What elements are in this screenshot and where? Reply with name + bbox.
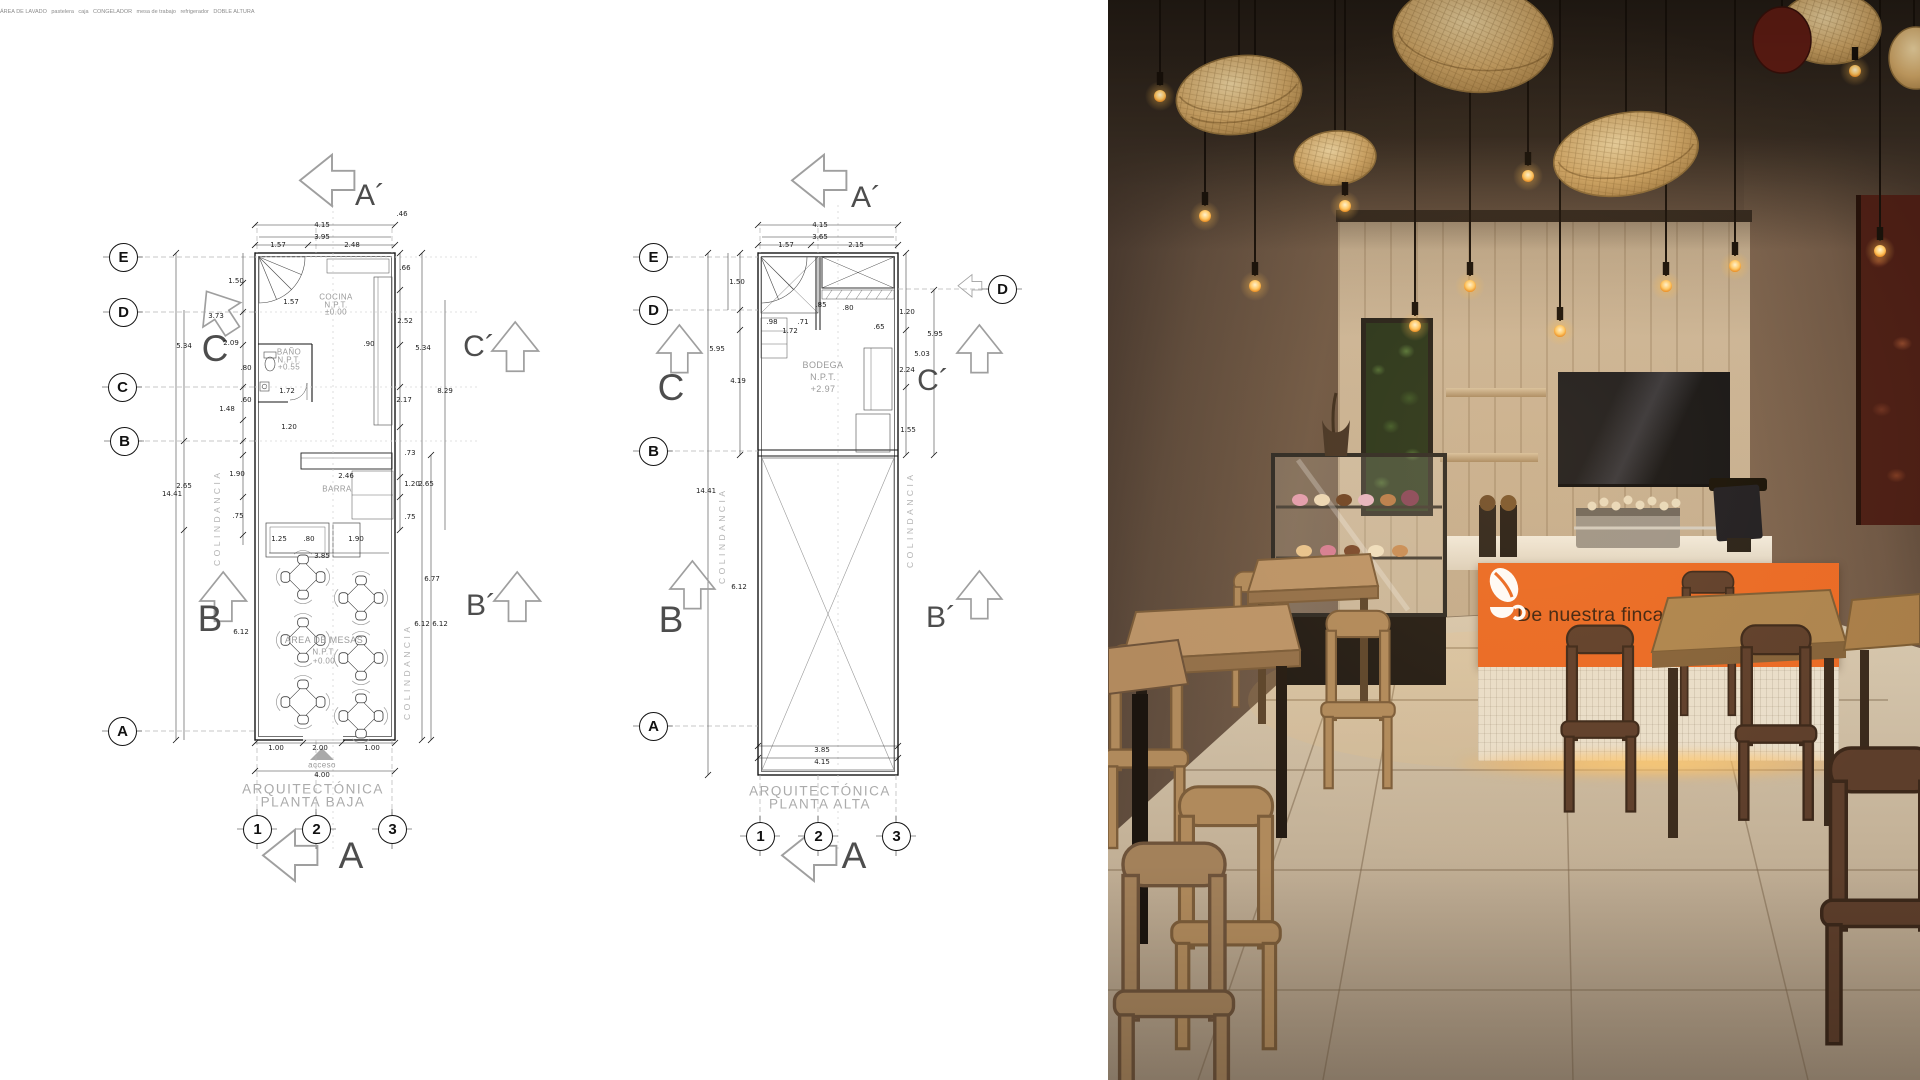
section-label-b-prime: B´	[466, 589, 496, 623]
dimension-label: 5.95	[709, 345, 725, 353]
grid-bubble-B2: B	[639, 437, 668, 466]
plan-alta-walls	[758, 253, 898, 775]
dimension-label: 1.55	[900, 426, 916, 434]
grid-bubble-B: B	[110, 427, 139, 456]
dimension-label: 1.72	[279, 387, 295, 395]
dimension-label: 14.41	[696, 487, 716, 495]
section-label-a: A	[339, 835, 364, 877]
dimension-label: 4.15	[314, 221, 330, 229]
grid-bubble-E: E	[109, 243, 138, 272]
grid-bubble-1: 1	[243, 815, 272, 844]
plan-alta-section-arrows	[657, 155, 1002, 881]
dimension-label: 2.65	[418, 480, 434, 488]
dimension-label: 1.57	[283, 298, 299, 306]
dimension-label: .80	[303, 535, 314, 543]
grid-bubble-3: 3	[378, 815, 407, 844]
grid-bubble-1b: 1	[746, 822, 775, 851]
dimension-label: 3.85	[814, 746, 830, 754]
dimension-label: 2.00	[312, 744, 328, 752]
right-tables-and-chairs	[1562, 572, 1920, 1044]
dimension-label: 1.57	[778, 241, 794, 249]
dimension-label: 1.00	[268, 744, 284, 752]
dimension-label: 2.09	[223, 339, 239, 347]
plan-baja-title-2: PLANTA BAJA	[261, 795, 366, 810]
furniture-and-lamps-layer	[1108, 0, 1920, 1080]
dimension-label: 2.52	[397, 317, 413, 325]
plan-baja-fixtures	[258, 257, 393, 760]
dimension-label: 2.46	[338, 472, 354, 480]
pastry-display-case	[1273, 393, 1446, 685]
section-label-c-prime: C´	[463, 330, 495, 364]
dimension-label: 1.90	[229, 470, 245, 478]
grid-bubble-2b: 2	[804, 822, 833, 851]
colindancia-left-2: COLINDANCIA	[717, 490, 727, 584]
section-label-a-2: A	[842, 835, 867, 877]
dimension-label: 4.19	[730, 377, 746, 385]
dimension-label: 6.12	[731, 583, 747, 591]
room-label-cocina-level: ±0.00	[325, 308, 347, 317]
dimension-label: 1.72	[782, 327, 798, 335]
dimension-label: 1.50	[228, 277, 244, 285]
plan-baja-tables	[276, 550, 387, 742]
room-label-bodega: BODEGA	[803, 360, 844, 370]
section-label-b-prime-2: B´	[926, 601, 956, 635]
dimension-label: .98	[766, 318, 777, 326]
plan-alta-fixtures	[761, 257, 894, 770]
grid-bubble-2: 2	[302, 815, 331, 844]
grid-bubble-A: A	[108, 717, 137, 746]
grid-bubble-C: C	[108, 373, 137, 402]
dimension-label: .80	[842, 304, 853, 312]
left-tables-and-chairs	[1108, 554, 1395, 1080]
section-label-b: B	[198, 598, 223, 640]
espresso-bar-equipment	[1479, 478, 1767, 557]
dimension-label: .85	[815, 301, 826, 309]
dimension-label: 5.34	[176, 342, 192, 350]
dimension-label: 5.34	[415, 344, 431, 352]
dimension-label: 2.48	[344, 241, 360, 249]
section-label-a-prime-2: A´	[851, 181, 881, 215]
plan-baja-gridlines	[137, 205, 478, 850]
dimension-label: 3.85	[314, 552, 330, 560]
dimension-label: 1.20	[281, 423, 297, 431]
dimension-label: 1.00	[364, 744, 380, 752]
dimension-label: 3.73	[208, 312, 224, 320]
plan-alta-title-2: PLANTA ALTA	[769, 797, 871, 812]
dimension-label: 1.50	[729, 278, 745, 286]
section-label-c-2: C	[658, 367, 685, 409]
dimension-label: .73	[404, 449, 415, 457]
dimension-label: .75	[232, 512, 243, 520]
rattan-pendant-lamps	[1171, 0, 1920, 207]
room-label-mesas-level: +0.00	[313, 657, 335, 666]
dimension-label: .66	[399, 264, 410, 272]
dimension-label: 3.65	[812, 233, 828, 241]
label-acceso: acceso	[308, 761, 336, 770]
dimension-label: 2.65	[176, 482, 192, 490]
dimension-label: 5.03	[914, 350, 930, 358]
dimension-label: 8.29	[437, 387, 453, 395]
room-label-mesas: ÁREA DE MESAS	[285, 635, 363, 645]
dimension-label: 4.15	[812, 221, 828, 229]
cafe-interior-render: De nuestra finca a tu taza	[1108, 0, 1920, 1080]
grid-bubble-E2: E	[639, 243, 668, 272]
dimension-label: 3.95	[314, 233, 330, 241]
dimension-label: 5.95	[927, 330, 943, 338]
section-label-c-prime-2: C´	[917, 364, 949, 398]
dimension-label: 2.24	[899, 366, 915, 374]
room-label-bodega-npt: N.P.T.	[810, 372, 836, 382]
grid-bubble-D: D	[109, 298, 138, 327]
label-barra: BARRA	[322, 485, 352, 494]
dimension-label: 4.15	[814, 758, 830, 766]
dimension-label: .80	[240, 364, 251, 372]
room-label-bodega-level: +2.97	[811, 384, 836, 394]
grid-bubble-D2-right: D	[988, 275, 1017, 304]
section-label-c: C	[202, 328, 229, 370]
dimension-label: .71	[797, 318, 808, 326]
dimension-label: .75	[404, 513, 415, 521]
dimension-label: 1.90	[348, 535, 364, 543]
dimension-label: 1.48	[219, 405, 235, 413]
grid-bubble-D2: D	[639, 296, 668, 325]
section-label-b-2: B	[659, 599, 684, 641]
dimension-label: .46	[396, 210, 407, 218]
pos-terminal	[1709, 478, 1767, 552]
dimension-label: 2.17	[396, 396, 412, 404]
room-label-mesas-npt: N.P.T.	[312, 648, 335, 657]
colindancia-right-2: COLINDANCIA	[905, 468, 915, 568]
page-canvas: E D C B A 1 2 3 A´ C C´ B B´ A COCINA N.…	[0, 0, 1920, 1080]
dimension-label: 1.57	[270, 241, 286, 249]
room-label-bano-level: +0.55	[278, 363, 300, 372]
dimension-label: 6.12	[414, 620, 430, 628]
colindancia-left: COLINDANCIA	[212, 472, 222, 566]
grid-bubble-3b: 3	[882, 822, 911, 851]
dimension-label: 1.20	[899, 308, 915, 316]
dimension-label: 14.41	[162, 490, 182, 498]
section-label-a-prime: A´	[355, 179, 385, 213]
dimension-label: .90	[363, 340, 374, 348]
dimension-label: 6.12	[432, 620, 448, 628]
dimension-label: 6.12	[233, 628, 249, 636]
dimension-label: 4.00	[314, 771, 330, 779]
dimension-label: .60	[240, 396, 251, 404]
dimension-label: .65	[873, 323, 884, 331]
dimension-label: 6.77	[424, 575, 440, 583]
dimension-label: 2.15	[848, 241, 864, 249]
grid-bubble-A2: A	[639, 712, 668, 741]
colindancia-right: COLINDANCIA	[402, 626, 412, 720]
dimension-label: 1.25	[271, 535, 287, 543]
